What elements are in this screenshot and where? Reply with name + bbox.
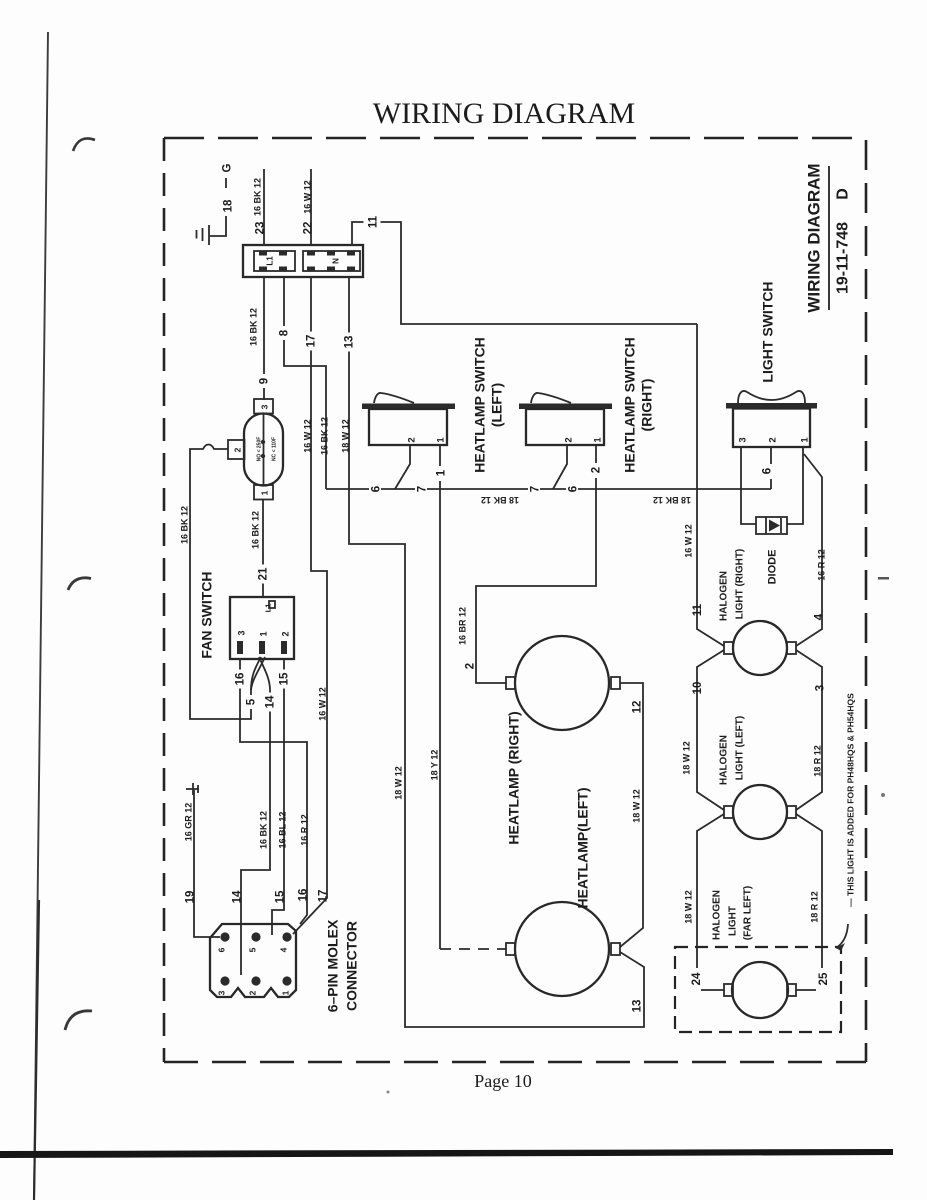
svg-text:3: 3 [738,437,749,442]
svg-text:N: N [332,258,341,264]
svg-text:LIGHT: LIGHT [728,906,739,936]
svg-text:L1: L1 [266,256,275,266]
svg-text:4: 4 [814,613,826,620]
svg-text:16 BK 12: 16 BK 12 [251,511,261,549]
svg-text:18 BK 12: 18 BK 12 [481,495,519,505]
svg-text:18 BK 12: 18 BK 12 [653,495,691,505]
svg-text:13: 13 [632,1000,644,1013]
svg-text:2: 2 [564,437,575,442]
svg-text:18 R 12: 18 R 12 [810,891,820,923]
svg-text:(RIGHT): (RIGHT) [639,379,655,432]
svg-text:16 GR 12: 16 GR 12 [184,803,194,842]
svg-text:18: 18 [223,199,235,212]
svg-text:HEATLAMP SWITCH: HEATLAMP SWITCH [472,337,488,473]
svg-text:6: 6 [568,486,580,492]
svg-text:2: 2 [248,990,258,995]
svg-text:HALOGEN: HALOGEN [712,890,723,940]
svg-text:16 BK 12: 16 BK 12 [249,308,259,346]
svg-text:LIGHT (LEFT): LIGHT (LEFT) [735,716,746,780]
svg-text:21: 21 [258,567,270,580]
svg-text:16 R 12: 16 R 12 [300,814,310,846]
svg-text:18 W 12: 18 W 12 [632,789,642,823]
svg-text:16 W 12: 16 W 12 [303,180,313,214]
svg-text:1: 1 [259,631,269,636]
svg-text:3: 3 [217,990,227,995]
svg-text:6: 6 [217,947,227,952]
svg-text:LIGHT (RIGHT): LIGHT (RIGHT) [735,549,746,620]
svg-text:2: 2 [465,663,477,669]
svg-text:14: 14 [265,695,277,708]
svg-text:1: 1 [436,469,448,476]
svg-text:WIRING DIAGRAM: WIRING DIAGRAM [805,163,824,312]
svg-text:25: 25 [818,972,830,985]
svg-text:9: 9 [259,378,271,384]
svg-text:16: 16 [298,889,310,902]
svg-text:19: 19 [185,891,197,904]
svg-text:Page 10: Page 10 [474,1071,532,1091]
svg-text:18 R 12: 18 R 12 [813,745,823,777]
svg-text:16 W 12: 16 W 12 [684,524,694,558]
svg-text:7: 7 [530,486,542,492]
svg-text:18 W 12: 18 W 12 [394,766,404,800]
svg-text:G: G [222,163,234,172]
svg-text:HALOGEN: HALOGEN [719,735,730,785]
svg-text:2: 2 [281,631,291,636]
svg-text:17: 17 [318,890,330,903]
svg-text:5: 5 [246,698,258,705]
svg-text:1: 1 [800,437,811,443]
svg-text:16 BK 12: 16 BK 12 [253,178,263,216]
svg-text:24: 24 [691,972,703,985]
svg-text:16 R 12: 16 R 12 [817,549,827,581]
svg-text:NC < 110F: NC < 110F [272,437,278,461]
svg-text:FAN SWITCH: FAN SWITCH [199,571,215,658]
svg-text:7: 7 [417,486,429,492]
svg-text:15: 15 [279,672,291,685]
svg-text:1: 1 [260,490,270,495]
svg-text:16 BK 12: 16 BK 12 [259,811,269,849]
svg-text:HEATLAMP SWITCH: HEATLAMP SWITCH [622,337,638,473]
svg-text:2: 2 [768,437,779,442]
svg-text:16 W 12: 16 W 12 [303,419,313,453]
svg-text:DIODE: DIODE [767,550,779,585]
svg-text:8: 8 [279,329,291,336]
svg-text:18 W 12: 18 W 12 [682,741,692,775]
svg-text:16 W 12: 16 W 12 [318,687,328,721]
svg-text:16 BK 12: 16 BK 12 [320,417,330,455]
svg-text:22: 22 [303,222,315,235]
svg-text:16 BL 12: 16 BL 12 [278,812,288,849]
svg-text:3: 3 [815,685,827,691]
svg-text:4: 4 [279,947,289,952]
svg-text:6–PIN MOLEX: 6–PIN MOLEX [325,919,341,1012]
svg-text:18 W 12: 18 W 12 [341,419,351,453]
svg-text:2: 2 [407,437,418,442]
svg-text:18 Y 12: 18 Y 12 [430,750,440,781]
svg-text:HEATLAMP (RIGHT): HEATLAMP (RIGHT) [506,711,522,844]
svg-text:11: 11 [692,603,704,616]
svg-text:12: 12 [632,701,644,714]
svg-text:1: 1 [436,437,447,443]
svg-text:17: 17 [306,335,318,348]
svg-text:6: 6 [762,468,774,474]
svg-text:D: D [835,188,852,200]
svg-text:13: 13 [344,336,356,349]
svg-text:16: 16 [235,673,247,686]
svg-text:NO < 250F: NO < 250F [257,437,263,462]
svg-text:2: 2 [233,447,243,452]
svg-text:HEATLAMP(LEFT): HEATLAMP(LEFT) [575,787,591,908]
svg-text:LIGHT SWITCH: LIGHT SWITCH [760,281,776,382]
svg-text:2: 2 [591,467,603,473]
svg-text:(LEFT): (LEFT) [489,383,505,427]
svg-text:WIRING DIAGRAM: WIRING DIAGRAM [373,97,635,130]
svg-text:11: 11 [368,215,380,228]
svg-text:(FAR LEFT): (FAR LEFT) [743,886,754,940]
svg-text:CONNECTOR: CONNECTOR [344,921,360,1011]
svg-text:14: 14 [232,890,244,903]
svg-text:10: 10 [692,682,704,695]
svg-text:19-11-748: 19-11-748 [835,222,852,294]
svg-text:15: 15 [275,890,287,903]
svg-text:1: 1 [281,990,291,995]
svg-text:3: 3 [237,630,247,635]
svg-text:HALOGEN: HALOGEN [719,571,730,621]
svg-text:— THIS LIGHT IS ADDED FOR PH48: — THIS LIGHT IS ADDED FOR PH48HQS & PH54… [846,693,856,907]
svg-text:16 BK 12: 16 BK 12 [180,506,190,544]
svg-text:1: 1 [593,437,604,443]
svg-text:6: 6 [371,486,383,492]
svg-text:5: 5 [248,947,258,952]
svg-text:16 BR 12: 16 BR 12 [458,607,468,645]
svg-text:18 W 12: 18 W 12 [684,890,694,924]
svg-text:3: 3 [260,404,270,409]
svg-text:23: 23 [255,222,267,235]
